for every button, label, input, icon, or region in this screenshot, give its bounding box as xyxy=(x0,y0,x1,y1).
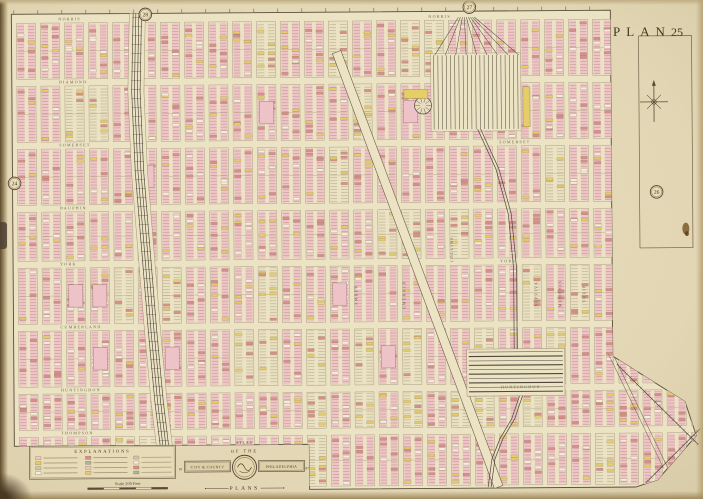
scale-bar: Scale 200 Feet xyxy=(88,481,168,490)
street-label: DAUPHIN xyxy=(60,205,87,210)
plate-title: PLAN25 xyxy=(613,23,703,41)
street-label: MEMPHIS xyxy=(557,280,562,307)
scale-label: Scale 200 Feet xyxy=(115,481,142,486)
street-label: SEPVIVA xyxy=(533,281,538,307)
plate-title-word: PLAN xyxy=(613,24,671,39)
legend-title: EXPLANATIONS xyxy=(74,449,130,454)
cartouche-arc-label: OF THE xyxy=(231,448,259,454)
margin-inset-box xyxy=(639,36,693,248)
adjacent-plan-badge: 26 xyxy=(650,186,663,199)
legend-chip xyxy=(35,457,41,460)
compass-rose xyxy=(640,80,668,122)
street-label: SOMERSET xyxy=(499,139,530,144)
legend-chip xyxy=(85,456,91,459)
legend-chip xyxy=(36,467,42,470)
street-label: AMBER xyxy=(353,285,358,306)
title-cartouche: ATLASOF THECITY & COUNTYPHILADELPHIA1887… xyxy=(178,440,309,492)
plate-number: 25 xyxy=(671,25,683,39)
legend-chip xyxy=(36,472,42,475)
street-label: EMERALD xyxy=(401,280,406,308)
atlas-page: NORRISNORRISDIAMONDSOMERSETSOMERSETDAUPH… xyxy=(0,0,703,499)
legend-chip xyxy=(86,466,92,469)
city-atlas-map: NORRISNORRISDIAMONDSOMERSETSOMERSETDAUPH… xyxy=(0,0,703,499)
legend-box: EXPLANATIONS xyxy=(29,445,175,479)
adjacent-plan-badge: 28 xyxy=(139,8,152,21)
cartouche-year-left: 18 xyxy=(179,467,183,471)
street-label: DIAMOND xyxy=(59,79,87,84)
map-plate: NORRISNORRISDIAMONDSOMERSETSOMERSETDAUPH… xyxy=(7,0,703,493)
street-label: NORRIS xyxy=(58,16,81,21)
street-label: COLLINS xyxy=(449,236,454,262)
cartouche-year-right: 87 xyxy=(306,466,310,470)
legend-chip xyxy=(134,471,140,474)
street-label: HUNTINGDON xyxy=(61,387,101,392)
svg-text:27: 27 xyxy=(467,5,473,11)
legend-chip xyxy=(134,466,140,469)
svg-text:26: 26 xyxy=(654,190,660,196)
street-label: YORK xyxy=(60,261,77,266)
street-label: CUMBERLAND xyxy=(61,324,102,329)
adjacent-plan-badge: 24 xyxy=(8,177,21,190)
cartouche-ribbon: PHILADELPHIA xyxy=(266,465,297,469)
svg-text:28: 28 xyxy=(143,12,149,18)
svg-text:24: 24 xyxy=(12,181,18,187)
legend-chip xyxy=(85,461,91,464)
street-label: YORK xyxy=(500,258,517,263)
cartouche-top-label: ATLAS xyxy=(236,441,253,445)
street-label: NORRIS xyxy=(428,14,451,19)
legend-chip xyxy=(35,462,41,465)
adjacent-plan-badge: 27 xyxy=(463,1,476,14)
street-label: THOMPSON xyxy=(61,430,93,435)
legend-chip xyxy=(133,461,139,464)
legend-chip xyxy=(133,456,139,459)
street-label: HUNTINGDON xyxy=(501,384,541,389)
city-blocks xyxy=(16,18,703,488)
legend-chip xyxy=(86,471,92,474)
cartouche-ribbon: CITY & COUNTY xyxy=(191,465,225,469)
cartouche-bottom-label: PLANS xyxy=(230,486,260,492)
street-label: TULIP xyxy=(581,284,586,302)
street-label: SOMERSET xyxy=(59,142,90,147)
